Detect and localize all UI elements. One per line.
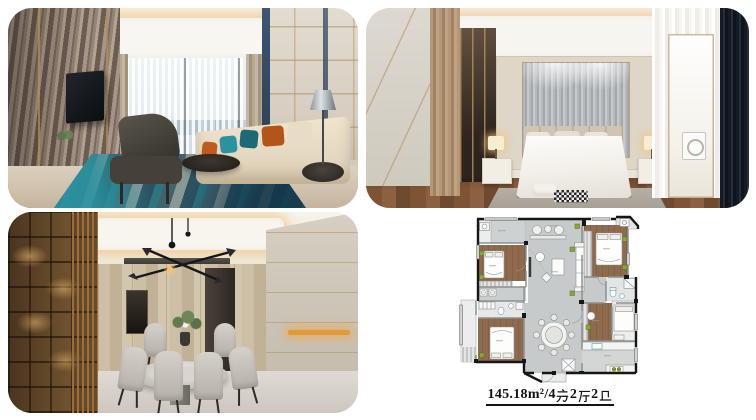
floor-lamp-stem <box>322 104 324 164</box>
caption-bath-count: 2 <box>591 388 598 402</box>
nightstand-left <box>482 158 512 184</box>
table-lamp-left <box>488 136 504 150</box>
plant-decor <box>56 130 74 142</box>
stone-panel-wall <box>366 8 430 186</box>
caption-area-number: 145.18 <box>488 388 528 402</box>
sofa-pillow-teal <box>239 129 259 149</box>
dining-chair <box>194 352 223 400</box>
coffee-table <box>182 154 240 172</box>
backlit-shelving <box>8 212 98 413</box>
dining-room-photo[interactable] <box>8 212 358 413</box>
side-table <box>302 162 344 182</box>
armchair <box>110 114 186 204</box>
collage-canvas: 145.18m²/422 <box>0 0 756 420</box>
armchair-leg <box>120 182 123 204</box>
table-lamp-stem <box>495 149 497 159</box>
sofa-pillow-orange <box>261 125 284 146</box>
flower-centerpiece <box>166 308 206 334</box>
washing-machine <box>682 132 706 160</box>
hanzi-wei-icon <box>599 389 612 402</box>
dining-chair <box>154 351 183 401</box>
caption-bedroom-count: 4 <box>549 388 556 402</box>
caption-area-unit: m² <box>528 388 544 402</box>
caption-hall-count: 2 <box>570 388 577 402</box>
armchair-leg <box>166 182 169 204</box>
vase <box>180 332 190 346</box>
bedroom-photo[interactable] <box>366 8 749 208</box>
houndstooth-bench <box>554 190 588 203</box>
floor-plan-drawing <box>458 215 642 383</box>
floor-plan[interactable] <box>458 215 642 383</box>
wood-slats <box>72 212 98 413</box>
tv-screen <box>66 70 104 123</box>
wall-light-slot <box>288 330 350 335</box>
washer-door <box>687 139 704 156</box>
floor-plan-caption-row: 145.18m²/422 <box>440 385 660 406</box>
balcony-window <box>668 34 714 198</box>
floor-plan-caption: 145.18m²/422 <box>486 388 615 406</box>
wood-wardrobe-column <box>430 8 460 196</box>
sofa-pillow-cream <box>288 122 312 144</box>
hanzi-ting-icon <box>578 389 591 402</box>
sofa-pillow-teal <box>219 135 238 154</box>
armchair-seat <box>110 156 182 184</box>
hanzi-fang-icon <box>556 389 569 402</box>
living-room-photo[interactable] <box>8 8 358 208</box>
sputnik-chandelier <box>126 218 242 292</box>
navy-curtain <box>720 8 749 208</box>
